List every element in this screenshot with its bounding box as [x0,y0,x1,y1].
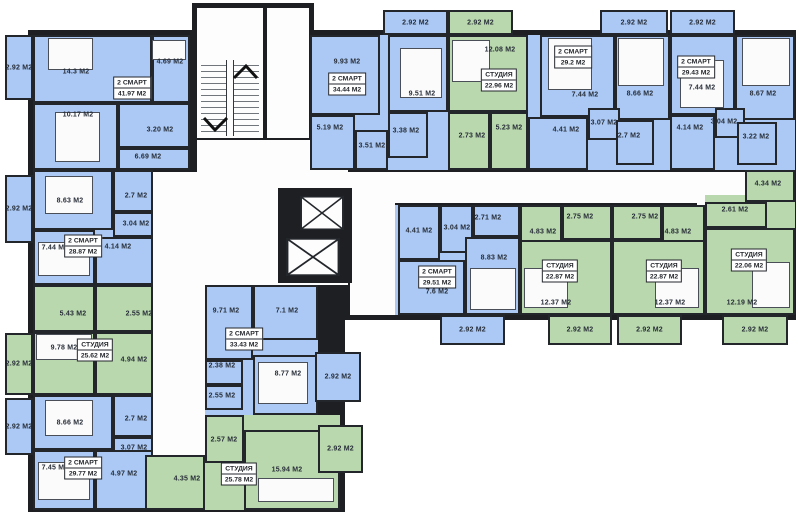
floor-plan-canvas: 2.92 М214.3 М24.69 М210.17 М23.20 М26.69… [0,0,799,523]
apartment-area-label: 22.96 М2 [482,81,516,91]
furniture [152,40,186,60]
room-area-label: 4.14 М2 [677,125,704,132]
room-area-label: 12.37 М2 [541,300,572,307]
room-area-label: 5.43 М2 [60,311,87,318]
apartment-type-label: СТУДИЯ [482,70,516,81]
room-area-label: 3.04 М2 [711,119,738,126]
room-area-label: 3.22 М2 [743,134,770,141]
room-area-label: 2.92 М2 [636,327,663,334]
furniture [742,38,790,86]
room-area-label: 12.37 М2 [655,300,686,307]
room-area-label: 2.38 М2 [209,363,236,370]
room-area-label: 6.69 М2 [135,154,162,161]
room[interactable] [448,112,490,170]
room-area-label: 4.41 М2 [406,228,433,235]
elevator-shaft [300,196,344,230]
room-area-label: 10.17 М2 [63,112,94,119]
room-area-label: 2.92 М2 [6,206,33,213]
room-area-label: 7.44 М2 [572,92,599,99]
room-area-label: 4.35 М2 [174,476,201,483]
room[interactable] [95,285,153,332]
apartment-area-label: 22.87 М2 [647,272,681,282]
apartment-tag[interactable]: СТУДИЯ25.62 М2 [77,339,113,362]
room[interactable] [528,117,588,170]
apartment-type-label: 2 СМАРТ [65,458,101,469]
apartment-tag[interactable]: 2 СМАРТ29.51 М2 [418,266,456,289]
room-area-label: 2.57 М2 [211,437,238,444]
elevator-shaft [286,238,340,276]
furniture [258,478,334,502]
apartment-area-label: 22.87 М2 [543,272,577,282]
room-area-label: 2.61 М2 [722,207,749,214]
room-area-label: 15.94 М2 [272,467,303,474]
apartment-tag[interactable]: 2 СМАРТ41.97 М2 [113,77,151,100]
room-area-label: 2.73 М2 [459,133,486,140]
room[interactable] [388,112,428,158]
room-area-label: 7.6 М2 [426,289,449,296]
apartment-type-label: СТУДИЯ [222,464,256,475]
apartment-area-label: 29.51 М2 [419,278,455,288]
room-area-label: 2.92 М2 [6,361,33,368]
apartment-type-label: 2 СМАРТ [226,329,262,340]
furniture [470,268,516,310]
room-area-label: 7.1 М2 [276,308,299,315]
apartment-type-label: 2 СМАРТ [329,74,365,85]
room-area-label: 2.92 М2 [459,327,486,334]
furniture [45,400,93,436]
apartment-type-label: СТУДИЯ [78,340,112,351]
room-area-label: 4.83 М2 [530,229,557,236]
room[interactable] [612,205,662,240]
apartment-tag[interactable]: 2 СМАРТ34.44 М2 [328,73,366,96]
apartment-area-label: 25.62 М2 [78,351,112,361]
apartment-area-label: 41.97 М2 [114,89,150,99]
room-area-label: 2.92 М2 [6,423,33,430]
room-area-label: 9.51 М2 [409,91,436,98]
room-area-label: 2.71 М2 [475,215,502,222]
room-area-label: 5.19 М2 [317,125,344,132]
room-area-label: 3.51 М2 [359,143,386,150]
room-area-label: 9.71 М2 [213,308,240,315]
apartment-tag[interactable]: СТУДИЯ22.87 М2 [542,260,578,283]
room[interactable] [113,170,153,212]
apartment-tag[interactable]: 2 СМАРТ33.43 М2 [225,328,263,351]
room-area-label: 9.78 М2 [51,345,78,352]
room-area-label: 8.63 М2 [57,198,84,205]
apartment-tag[interactable]: СТУДИЯ22.06 М2 [731,249,767,272]
room-area-label: 4.83 М2 [665,229,692,236]
apartment-tag[interactable]: 2 СМАРТ29.2 М2 [554,46,592,69]
apartment-tag[interactable]: СТУДИЯ25.78 М2 [221,463,257,486]
room-area-label: 2.92 М2 [567,327,594,334]
room-area-label: 5.23 М2 [496,125,523,132]
room[interactable] [355,130,388,170]
room-area-label: 9.93 М2 [334,59,361,66]
apartment-area-label: 22.06 М2 [732,261,766,271]
room[interactable] [616,120,654,165]
apartment-area-label: 25.78 М2 [222,475,256,485]
room-area-label: 2.92 М2 [327,446,354,453]
room-area-label: 3.04 М2 [444,225,471,232]
furniture [55,112,100,162]
furniture [45,176,93,214]
room-area-label: 7.44 М2 [689,85,716,92]
apartment-type-label: СТУДИЯ [543,261,577,272]
apartment-tag[interactable]: 2 СМАРТ29.43 М2 [677,56,715,79]
apartment-tag[interactable]: 2 СМАРТ28.87 М2 [64,235,102,258]
room[interactable] [670,115,715,170]
room-area-label: 4.97 М2 [111,471,138,478]
room-area-label: 2.92 М2 [325,374,352,381]
corridor [348,172,746,203]
apartment-type-label: 2 СМАРТ [678,57,714,68]
apartment-tag[interactable]: СТУДИЯ22.87 М2 [646,260,682,283]
room-area-label: 2.7 М2 [125,193,148,200]
apartment-area-label: 29.77 М2 [65,469,101,479]
room-area-label: 2.92 М2 [402,19,429,26]
room-area-label: 2.92 М2 [621,19,648,26]
room[interactable] [737,122,777,165]
room-area-label: 2.92 М2 [6,64,33,71]
room-area-label: 3.04 М2 [123,221,150,228]
room[interactable] [33,285,95,332]
room-area-label: 3.07 М2 [121,445,148,452]
apartment-area-label: 29.43 М2 [678,68,714,78]
room-area-label: 2.75 М2 [632,214,659,221]
room-area-label: 2.55 М2 [126,311,153,318]
room-area-label: 12.08 М2 [485,47,516,54]
apartment-type-label: СТУДИЯ [732,250,766,261]
room-area-label: 3.38 М2 [393,128,420,135]
room-area-label: 2.7 М2 [618,133,641,140]
furniture [48,38,93,70]
elevator-cross-icon [300,196,344,230]
room-area-label: 2.55 М2 [209,393,236,400]
apartment-type-label: 2 СМАРТ [114,78,150,89]
apartment-type-label: 2 СМАРТ [555,47,591,58]
apartment-tag[interactable]: СТУДИЯ22.96 М2 [481,69,517,92]
room[interactable] [145,455,205,510]
room-area-label: 4.34 М2 [755,181,782,188]
room-area-label: 2.7 М2 [125,416,148,423]
corridor [350,203,395,315]
room-area-label: 8.77 М2 [275,371,302,378]
room-area-label: 8.66 М2 [57,420,84,427]
stairs-direction-arrow [201,60,259,136]
apartment-area-label: 34.44 М2 [329,85,365,95]
staircase [201,60,259,136]
room[interactable] [490,112,528,170]
elevator-cross-icon [286,238,340,276]
apartment-area-label: 28.87 М2 [65,247,101,257]
room[interactable] [310,115,355,170]
room-area-label: 4.14 М2 [105,244,132,251]
room-area-label: 8.66 М2 [627,91,654,98]
room-area-label: 4.41 М2 [553,127,580,134]
apartment-type-label: 2 СМАРТ [65,236,101,247]
room-area-label: 3.07 М2 [591,120,618,127]
room-area-label: 2.92 М2 [689,19,716,26]
room-area-label: 8.83 М2 [481,255,508,262]
furniture [618,38,664,86]
apartment-area-label: 33.43 М2 [226,340,262,350]
apartment-type-label: 2 СМАРТ [419,267,455,278]
apartment-type-label: СТУДИЯ [647,261,681,272]
room-area-label: 2.75 М2 [567,214,594,221]
apartment-area-label: 29.2 М2 [555,58,591,68]
apartment-tag[interactable]: 2 СМАРТ29.77 М2 [64,457,102,480]
room-area-label: 4.94 М2 [121,357,148,364]
room-area-label: 4.69 М2 [157,59,184,66]
room-area-label: 2.92 М2 [467,19,494,26]
room-area-label: 12.19 М2 [727,300,758,307]
room-area-label: 2.92 М2 [742,327,769,334]
room-area-label: 3.20 М2 [147,127,174,134]
room-area-label: 14.3 М2 [63,69,90,76]
room[interactable] [118,103,190,148]
room-area-label: 8.67 М2 [750,91,777,98]
furniture [258,362,308,404]
corridor [267,8,309,138]
room[interactable] [562,205,612,240]
